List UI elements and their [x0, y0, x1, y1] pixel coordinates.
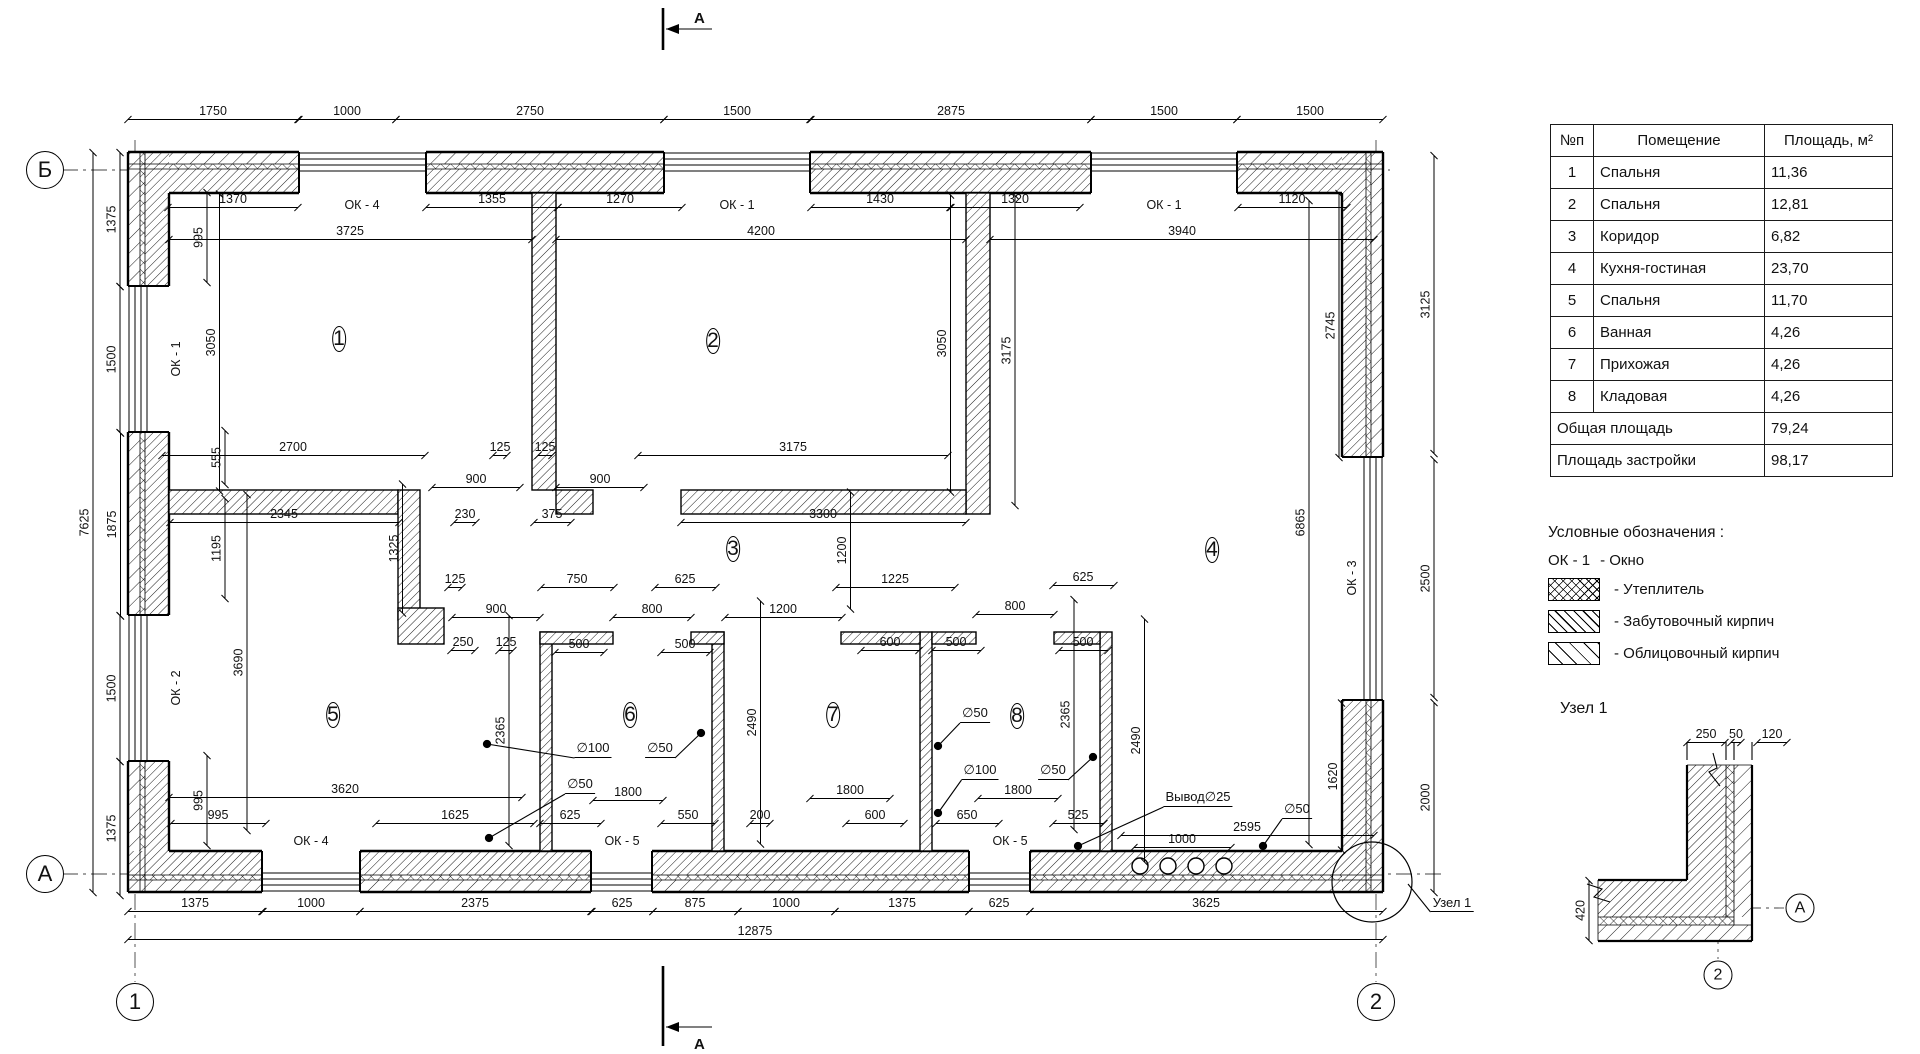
dimension-label: 1270: [558, 193, 682, 208]
table-cell: Коридор: [1594, 221, 1765, 253]
room-number-8: 8: [1010, 703, 1024, 729]
dimension-label: 800: [613, 603, 691, 618]
leader-label: ∅50: [645, 740, 675, 758]
table-cell: Кухня-гостиная: [1594, 253, 1765, 285]
dimension-label: 900: [556, 473, 644, 488]
dimension-label: 500: [555, 638, 604, 653]
dimension-label: 750: [541, 573, 614, 588]
dimension-label: 1225: [836, 573, 955, 588]
dimension-label: 1000: [263, 897, 360, 912]
dimension-label: 625: [540, 809, 601, 824]
section-letter-bottom: А: [694, 1036, 705, 1053]
dimension-label: 1500: [664, 105, 810, 120]
legend: Условные обозначения : ОК - 1 - Окно - У…: [1548, 524, 1908, 674]
table-row: 1Спальня11,36: [1551, 157, 1893, 189]
dimension-label: 650: [936, 809, 999, 824]
leader-label: Узел 1: [1431, 895, 1474, 912]
dimension-label: 500: [661, 638, 710, 653]
drawing-sheet: 1750100027501500287515001500137013551270…: [0, 0, 1920, 1054]
dimension-label: 125: [493, 441, 507, 456]
col-header-area: Площадь, м²: [1765, 125, 1893, 157]
leader-label: ∅50: [565, 776, 595, 794]
footprint-label: Площадь застройки: [1551, 445, 1765, 477]
dimension-label: 3940: [990, 225, 1374, 240]
dimension-label: 1875: [106, 433, 121, 616]
window-tag: ОК - 1: [1146, 198, 1181, 212]
dimension-label: 3625: [1030, 897, 1383, 912]
dimension-label: 3125: [1420, 156, 1435, 454]
table-cell: 2: [1551, 189, 1594, 221]
table-cell: 4: [1551, 253, 1594, 285]
dimension-label: 800: [976, 600, 1054, 615]
window-tag: ОК - 5: [992, 834, 1027, 848]
dimension-label: 995: [171, 809, 266, 824]
room-number-4: 4: [1205, 537, 1219, 563]
dimension-label: 1200: [725, 603, 842, 618]
axis-marker-1: 1: [116, 983, 154, 1021]
dimension-label: 2345: [170, 508, 399, 523]
window-tag: ОК - 4: [344, 198, 379, 212]
axis-marker-2: 2: [1357, 983, 1395, 1021]
dimension-label: 1625: [376, 809, 534, 824]
dimension-label: 4200: [556, 225, 966, 240]
legend-window-label: - Окно: [1600, 552, 1644, 569]
dimension-label: 600: [861, 636, 919, 651]
table-cell: 4,26: [1765, 349, 1893, 381]
table-cell: Спальня: [1594, 189, 1765, 221]
col-header-number: №п: [1551, 125, 1594, 157]
dimension-label: 250: [451, 636, 475, 651]
table-cell: Кладовая: [1594, 381, 1765, 413]
dimension-label: 375: [534, 508, 571, 523]
section-letter-top: А: [694, 10, 705, 27]
table-cell: 6,82: [1765, 221, 1893, 253]
legend-header: Условные обозначения :: [1548, 524, 1908, 542]
dimension-label: 1500: [106, 616, 121, 762]
table-row: 4Кухня-гостиная23,70: [1551, 253, 1893, 285]
dimension-label: 1000: [738, 897, 835, 912]
dimension-label: 1500: [1237, 105, 1383, 120]
dimension-label: 50: [1731, 728, 1741, 743]
col-header-room: Помещение: [1594, 125, 1765, 157]
dimension-label: 625: [1053, 571, 1114, 586]
window-tag: ОК - 1: [719, 198, 754, 212]
dimension-label: 125: [448, 573, 462, 588]
legend-backing-label: - Забутовочный кирпич: [1614, 613, 1774, 630]
dimension-label: 2000: [1420, 703, 1435, 893]
total-label: Общая площадь: [1551, 413, 1765, 445]
table-cell: 8: [1551, 381, 1594, 413]
backing-brick-swatch-icon: [1548, 610, 1600, 633]
table-cell: 7: [1551, 349, 1594, 381]
window-tag: ОК - 1: [169, 341, 183, 376]
dimension-label: 600: [846, 809, 904, 824]
room-number-3: 3: [726, 536, 740, 562]
table-row: 2Спальня12,81: [1551, 189, 1893, 221]
leader-label: ∅50: [1282, 801, 1312, 819]
dimension-label: 1375: [106, 762, 121, 896]
leader-label: ∅50: [1038, 762, 1068, 780]
dimension-label: 1200: [836, 492, 851, 609]
legend-facing-label: - Облицовочный кирпич: [1614, 645, 1779, 662]
table-cell: Ванная: [1594, 317, 1765, 349]
table-cell: 4,26: [1765, 317, 1893, 349]
dimension-label: 1800: [810, 784, 890, 799]
dimension-label: 3175: [638, 441, 948, 456]
leader-label: ∅100: [961, 762, 998, 780]
dimension-label: 250: [1687, 728, 1725, 743]
dimension-label: 12875: [128, 925, 1383, 940]
dimension-label: 200: [750, 809, 770, 824]
table-cell: 5: [1551, 285, 1594, 317]
footprint-value: 98,17: [1765, 445, 1893, 477]
room-number-5: 5: [326, 702, 340, 728]
dimension-label: 1430: [811, 193, 950, 208]
window-tag: ОК - 5: [604, 834, 639, 848]
leader-label: Вывод∅25: [1163, 789, 1232, 807]
table-cell: 3: [1551, 221, 1594, 253]
legend-insulation-label: - Утеплитель: [1614, 581, 1704, 598]
window-tag: ОК - 2: [169, 670, 183, 705]
dimension-label: 875: [653, 897, 738, 912]
room-number-2: 2: [706, 328, 720, 354]
dimension-label: 1800: [978, 784, 1058, 799]
dimension-label: 2375: [360, 897, 591, 912]
table-cell: 23,70: [1765, 253, 1893, 285]
dimension-label: 1500: [106, 287, 121, 433]
dimension-label: 1800: [593, 786, 663, 801]
table-cell: Спальня: [1594, 285, 1765, 317]
dimension-label: 1325: [388, 484, 403, 613]
axis-marker-А: А: [26, 855, 64, 893]
dimension-label: 1750: [128, 105, 299, 120]
dimension-label: 525: [1053, 809, 1104, 824]
dimension-label: 1620: [1327, 703, 1342, 850]
dimension-label: 900: [432, 473, 520, 488]
table-row: 6Ванная4,26: [1551, 317, 1893, 349]
legend-window-key: ОК - 1: [1548, 552, 1590, 569]
room-area-table: №п Помещение Площадь, м² 1Спальня11,362С…: [1550, 124, 1893, 477]
table-footprint-row: Площадь застройки 98,17: [1551, 445, 1893, 477]
dimension-label: 1000: [298, 105, 396, 120]
table-row: 3Коридор6,82: [1551, 221, 1893, 253]
facing-brick-swatch-icon: [1548, 642, 1600, 665]
dimension-label: 2750: [396, 105, 664, 120]
dimension-label: 2745: [1325, 194, 1340, 458]
dimension-label: 1375: [128, 897, 262, 912]
dimension-label: 3725: [169, 225, 532, 240]
dimension-label: 7625: [79, 153, 94, 893]
total-value: 79,24: [1765, 413, 1893, 445]
dimension-label: 500: [932, 636, 981, 651]
table-total-row: Общая площадь 79,24: [1551, 413, 1893, 445]
dimension-label: 1375: [106, 153, 121, 287]
table-row: 7Прихожая4,26: [1551, 349, 1893, 381]
table-header-row: №п Помещение Площадь, м²: [1551, 125, 1893, 157]
window-tag: ОК - 3: [1345, 560, 1359, 595]
dimension-label: 555: [211, 431, 226, 485]
insulation-swatch-icon: [1548, 578, 1600, 601]
leader-label: ∅50: [960, 705, 990, 723]
axis-marker-Б: Б: [26, 151, 64, 189]
dimension-label: 550: [661, 809, 715, 824]
dimension-label: 625: [655, 573, 716, 588]
table-cell: 11,36: [1765, 157, 1893, 189]
table-cell: 12,81: [1765, 189, 1893, 221]
dimension-label: 1375: [835, 897, 969, 912]
dimension-label: 125: [538, 441, 552, 456]
table-cell: 1: [1551, 157, 1594, 189]
dimension-label: 3690: [233, 495, 248, 831]
axis-marker-А: А: [1786, 894, 1815, 923]
dimension-label: 3300: [681, 508, 966, 523]
dimension-label: 3050: [936, 195, 951, 492]
table-row: 8Кладовая4,26: [1551, 381, 1893, 413]
axis-marker-2: 2: [1704, 961, 1733, 990]
table-cell: 4,26: [1765, 381, 1893, 413]
room-number-7: 7: [826, 702, 840, 728]
table-cell: Прихожая: [1594, 349, 1765, 381]
legend-item-window: ОК - 1 - Окно: [1548, 552, 1908, 569]
dimension-label: 2700: [162, 441, 425, 456]
table-row: 5Спальня11,70: [1551, 285, 1893, 317]
dimension-label: 230: [454, 508, 476, 523]
window-tag: ОК - 4: [293, 834, 328, 848]
node-1-detail-title: Узел 1: [1560, 700, 1607, 718]
dimension-label: 1355: [426, 193, 558, 208]
dimension-label: 3620: [169, 783, 522, 798]
table-cell: 11,70: [1765, 285, 1893, 317]
dimension-label: 6865: [1295, 201, 1310, 845]
table-cell: 6: [1551, 317, 1594, 349]
legend-item-backing-brick: - Забутовочный кирпич: [1548, 610, 1908, 633]
leader-label: ∅100: [574, 740, 611, 758]
dimension-label: 2500: [1420, 460, 1435, 698]
room-number-1: 1: [332, 326, 346, 352]
dimension-label: 3175: [1001, 196, 1016, 506]
dimension-label: 420: [1575, 881, 1590, 941]
dimension-label: 1370: [168, 193, 298, 208]
dimension-label: 120: [1757, 728, 1787, 743]
legend-item-insulation: - Утеплитель: [1548, 578, 1908, 601]
dimension-label: 625: [592, 897, 653, 912]
room-number-6: 6: [623, 702, 637, 728]
table-cell: Спальня: [1594, 157, 1765, 189]
dimension-label: 625: [969, 897, 1030, 912]
dimension-label: 995: [193, 756, 208, 846]
dimension-label: 2875: [811, 105, 1091, 120]
dimension-label: 1500: [1091, 105, 1237, 120]
legend-item-facing-brick: - Облицовочный кирпич: [1548, 642, 1908, 665]
